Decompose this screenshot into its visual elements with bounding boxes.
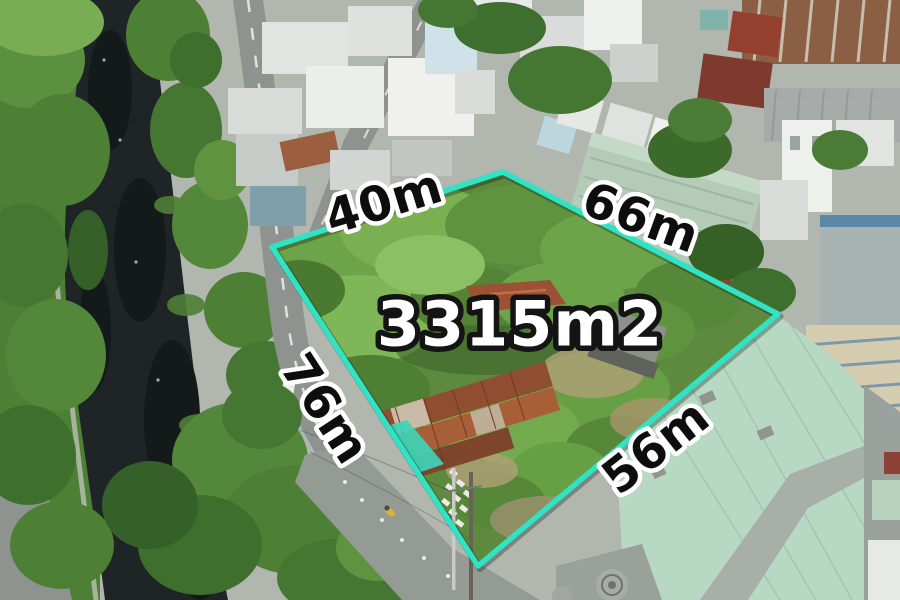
aerial-photo-canvas: 40m 66m 76m 56m 3315m2 bbox=[0, 0, 900, 600]
aerial-photo: 40m 66m 76m 56m 3315m2 bbox=[0, 0, 900, 600]
utility-pole bbox=[469, 472, 473, 600]
area-label: 3315m2 bbox=[377, 288, 663, 361]
